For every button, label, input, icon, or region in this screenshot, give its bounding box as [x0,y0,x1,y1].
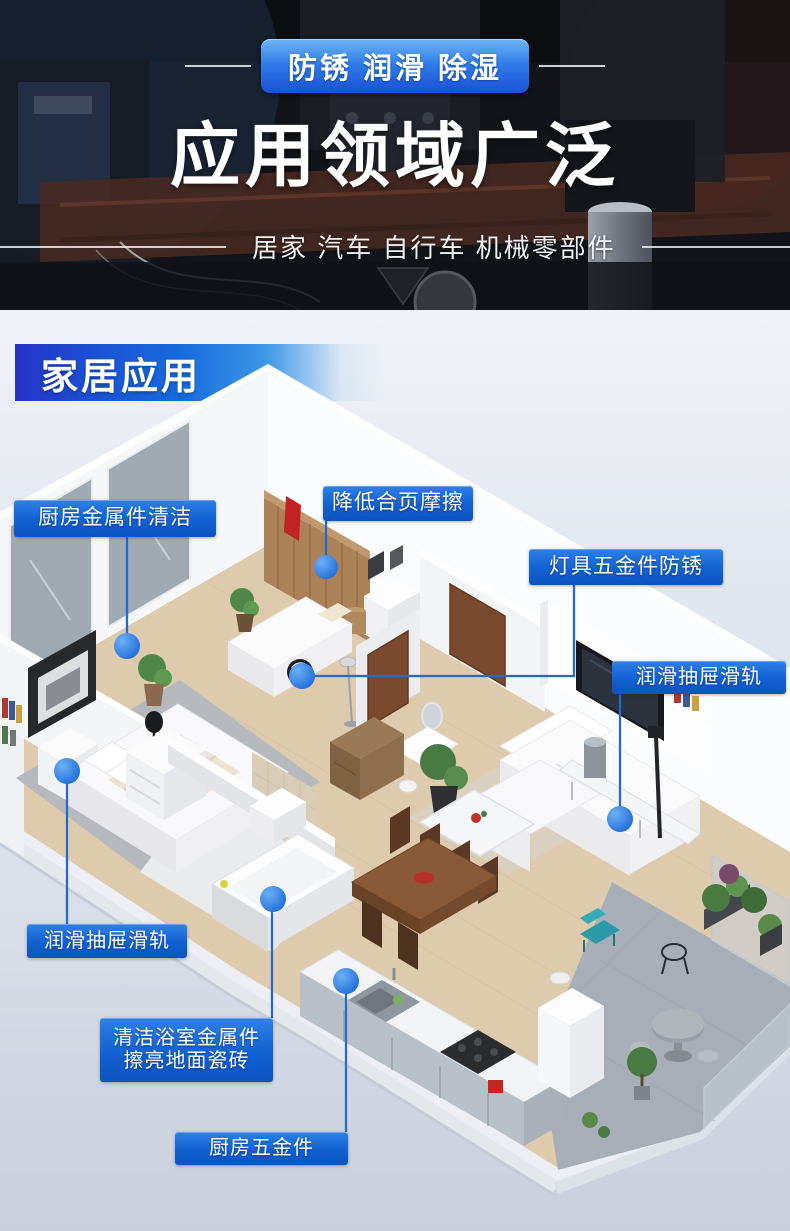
centerpiece [414,872,434,884]
fridge [538,988,604,1098]
callout-label-lamp-hardware-rustproof: 灯具五金件防锈 [529,549,723,585]
callout-text: 厨房金属件清洁 [38,506,192,530]
callout-label-hinge-friction: 降低合页摩擦 [323,486,473,521]
callout-text: 润滑抽屉滑轨 [636,666,762,689]
trash-bin [584,737,606,778]
callout-label-bathroom-clean: 清洁浴室金属件 擦亮地面瓷砖 [100,1018,273,1082]
callout-label-drawer-slides-left: 润滑抽屉滑轨 [27,924,187,958]
callout-text: 灯具五金件防锈 [549,555,703,579]
callout-label-kitchen-metal-clean: 厨房金属件清洁 [14,500,216,537]
product-detail-page: 防锈 润滑 除湿 应用领域广泛 居家 汽车 自行车 机械零部件 家居应用 [0,0,790,1231]
callout-text-line1: 清洁浴室金属件 [113,1027,260,1050]
callout-text: 厨房五金件 [209,1137,314,1160]
callout-text: 降低合页摩擦 [332,491,464,515]
callout-text: 润滑抽屉滑轨 [44,930,170,953]
callout-label-kitchen-hardware: 厨房五金件 [175,1132,348,1165]
callout-label-drawer-slides-right: 润滑抽屉滑轨 [612,661,786,694]
callout-text-line2: 擦亮地面瓷砖 [124,1050,250,1073]
red-kettle [488,1080,503,1093]
